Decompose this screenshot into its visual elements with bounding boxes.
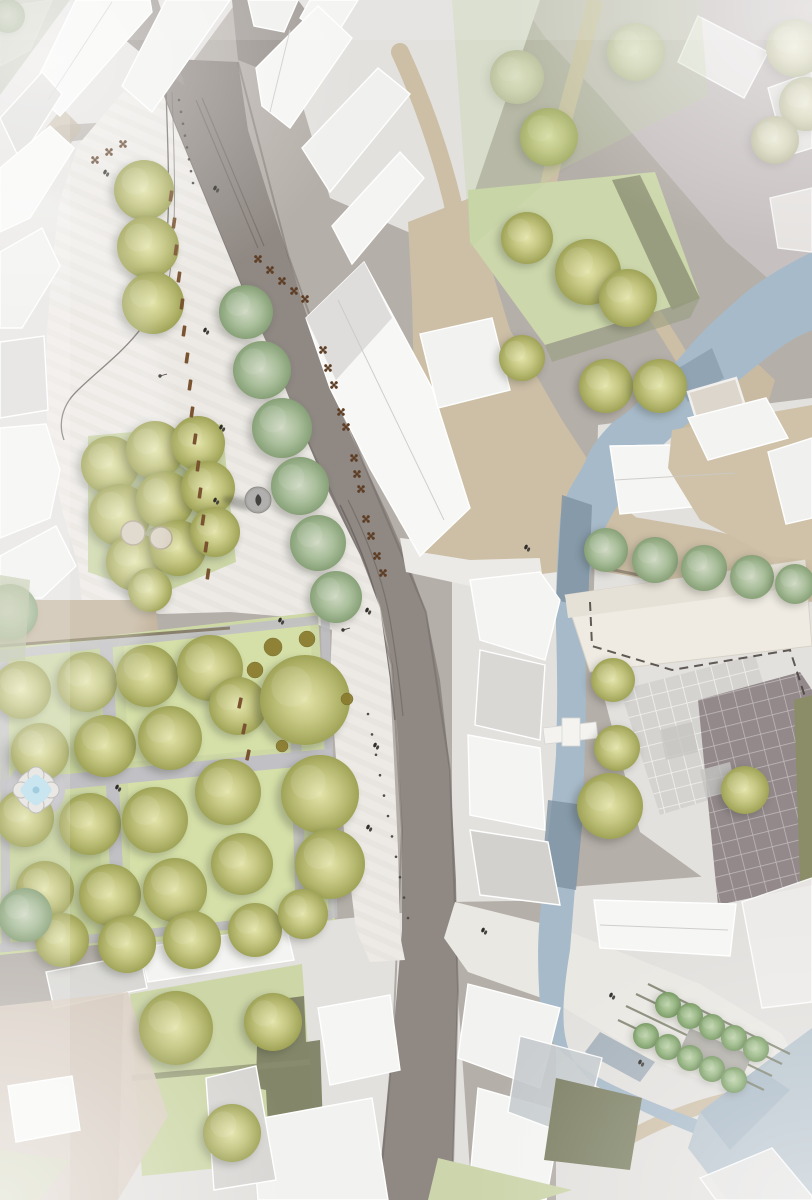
tree-highlight xyxy=(636,1026,648,1038)
fountain-water-lobe xyxy=(42,785,52,795)
tree-highlight xyxy=(508,219,531,242)
bollard-dot xyxy=(180,111,183,114)
bollard-dot xyxy=(182,122,185,125)
tree-highlight xyxy=(746,1039,758,1051)
tree-highlight xyxy=(304,838,336,870)
tree-highlight xyxy=(680,1048,692,1060)
fountain-water-lobe xyxy=(21,785,31,795)
tree-highlight xyxy=(680,1006,692,1018)
tree-highlight xyxy=(786,84,810,108)
bollard-dot xyxy=(367,713,370,716)
tree-highlight xyxy=(226,292,250,316)
planting-circle xyxy=(264,638,282,656)
tree-highlight xyxy=(773,26,799,52)
tree-highlight xyxy=(87,872,115,900)
bollard-dot xyxy=(399,876,402,879)
tree-highlight xyxy=(124,653,152,681)
canopy-structure xyxy=(150,527,172,549)
tree-highlight xyxy=(97,492,125,520)
tree-highlight xyxy=(658,1037,670,1049)
fountain-jet xyxy=(33,787,40,794)
tree-highlight xyxy=(105,922,131,948)
tree-highlight xyxy=(134,574,154,594)
tree-highlight xyxy=(130,795,160,825)
tree-highlight xyxy=(125,224,153,252)
masterplan-image xyxy=(0,0,812,1200)
tree-highlight xyxy=(585,781,615,811)
planting-circle xyxy=(276,740,288,752)
canopy-structure xyxy=(121,521,145,545)
bollard-dot xyxy=(379,774,382,777)
bollard-dot xyxy=(407,917,410,920)
tree-highlight xyxy=(151,866,180,895)
tree-highlight xyxy=(170,918,196,944)
tree-highlight xyxy=(590,534,610,554)
tree-highlight xyxy=(727,772,749,794)
tree-highlight xyxy=(122,168,149,195)
tree-highlight xyxy=(614,30,640,56)
bollard-dot xyxy=(391,835,394,838)
fountain-water-lobe xyxy=(31,775,41,785)
tree-highlight xyxy=(606,276,632,302)
planting-circle xyxy=(341,693,353,705)
tree-highlight xyxy=(18,730,44,756)
tree-highlight xyxy=(297,522,322,547)
bollard-dot xyxy=(371,733,374,736)
tree-highlight xyxy=(527,115,553,141)
tree-highlight xyxy=(0,668,26,694)
tree-highlight xyxy=(497,57,521,81)
tree-highlight xyxy=(640,366,664,390)
tree-highlight xyxy=(143,478,169,504)
planting-circle xyxy=(247,662,263,678)
tree-highlight xyxy=(505,341,526,362)
tree-highlight xyxy=(736,561,756,581)
tree-highlight xyxy=(724,1070,736,1082)
tree-highlight xyxy=(600,731,621,752)
bollard-dot xyxy=(186,146,189,149)
tree-highlight xyxy=(724,1028,736,1040)
tree-highlight xyxy=(67,801,95,829)
fountain-water-lobe xyxy=(31,796,41,806)
tree-highlight xyxy=(5,895,29,919)
tree-highlight xyxy=(780,569,798,587)
site-plan-canvas xyxy=(0,0,812,1200)
bollard-dot xyxy=(192,182,195,185)
bollard-dot xyxy=(383,794,386,797)
bollard-dot xyxy=(387,815,390,818)
planting-circle xyxy=(299,631,315,647)
tree-highlight xyxy=(210,1111,236,1137)
tree-highlight xyxy=(65,660,92,687)
tree-highlight xyxy=(260,406,287,433)
tree-highlight xyxy=(278,464,304,490)
tree-highlight xyxy=(687,551,708,572)
tree-highlight xyxy=(271,666,312,707)
tree-highlight xyxy=(82,723,110,751)
tree-highlight xyxy=(563,247,593,277)
bollard-dot xyxy=(395,856,398,859)
tree-highlight xyxy=(586,366,610,390)
tree-highlight xyxy=(178,423,202,447)
tree-highlight xyxy=(638,543,659,564)
tree-highlight xyxy=(317,578,340,601)
tree-highlight xyxy=(203,767,233,797)
bollard-dot xyxy=(190,170,193,173)
tree-highlight xyxy=(235,910,259,934)
lamp xyxy=(341,628,344,631)
tree-highlight xyxy=(251,1000,277,1026)
tree-highlight xyxy=(658,995,670,1007)
tree-highlight xyxy=(702,1017,714,1029)
tree-highlight xyxy=(240,348,266,374)
tree-highlight xyxy=(597,664,617,684)
bollard-dot xyxy=(375,754,378,757)
tree-canopy xyxy=(0,888,52,942)
lamp xyxy=(158,374,161,377)
tree-highlight xyxy=(148,1000,181,1033)
tree-highlight xyxy=(146,714,175,743)
tree-highlight xyxy=(702,1059,714,1071)
tree-highlight xyxy=(219,841,247,869)
tree-highlight xyxy=(133,428,159,454)
tree-highlight xyxy=(284,895,307,918)
bollard-dot xyxy=(184,134,187,137)
tree-highlight xyxy=(185,643,215,673)
tree-highlight xyxy=(757,122,779,144)
tree-highlight xyxy=(291,765,326,800)
tree-highlight xyxy=(130,280,158,308)
bollard-dot xyxy=(403,896,406,899)
tree-highlight xyxy=(88,443,114,469)
bollard-dot xyxy=(188,158,191,161)
tree-highlight xyxy=(196,513,219,536)
bollard-dot xyxy=(178,99,181,102)
